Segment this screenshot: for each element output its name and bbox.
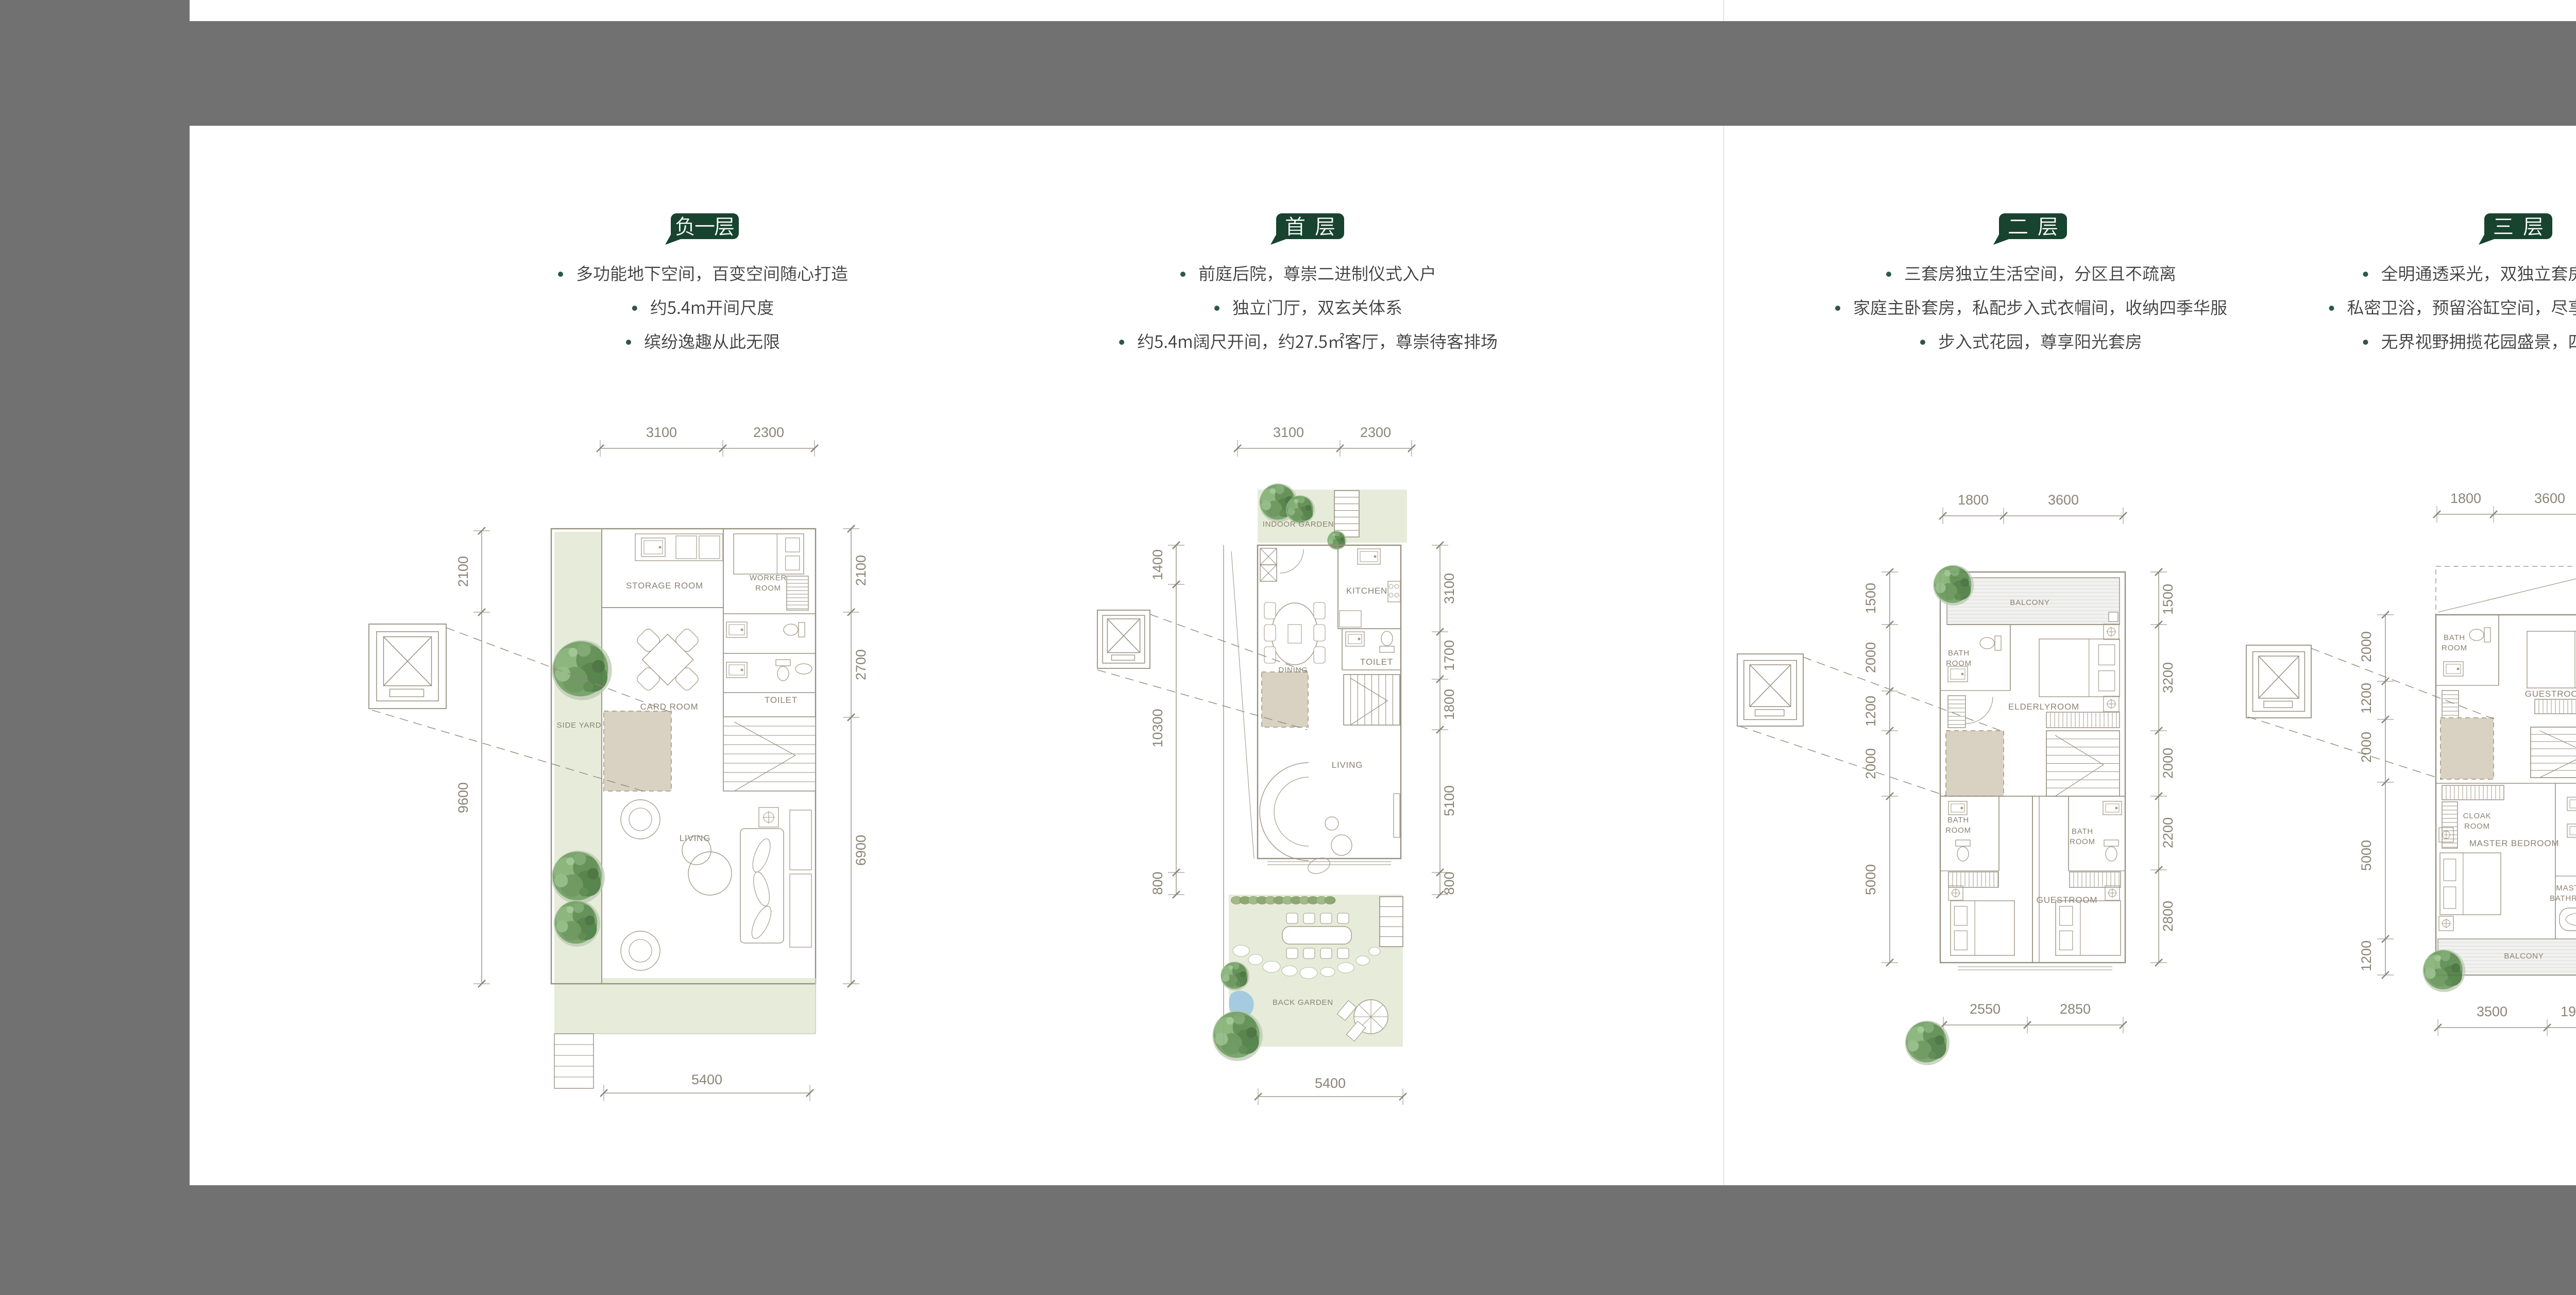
svg-text:BATHROOM: BATHROOM [2550,894,2576,903]
svg-text:800: 800 [1442,871,1457,895]
svg-text:2200: 2200 [2160,817,2176,848]
svg-text:1200: 1200 [2359,940,2374,971]
svg-text:2300: 2300 [753,425,784,440]
svg-text:9600: 9600 [455,782,471,813]
svg-text:ROOM: ROOM [2464,822,2490,831]
svg-text:BATH: BATH [1948,649,1970,658]
svg-text:5100: 5100 [1442,785,1457,816]
svg-text:3100: 3100 [646,425,677,440]
svg-text:5400: 5400 [1315,1075,1346,1091]
svg-text:1200: 1200 [1863,696,1878,727]
svg-text:WORKER: WORKER [750,574,787,582]
svg-text:2100: 2100 [455,556,471,587]
svg-text:2000: 2000 [1863,642,1878,673]
svg-text:2000: 2000 [2359,631,2374,662]
svg-text:1700: 1700 [1442,640,1457,671]
svg-text:MASTER: MASTER [2556,884,2576,893]
svg-text:2850: 2850 [2060,1001,2091,1017]
svg-text:ROOM: ROOM [1945,826,1971,835]
svg-text:1200: 1200 [2359,683,2374,714]
svg-text:ELDERLYROOM: ELDERLYROOM [2008,702,2079,712]
svg-text:3100: 3100 [1442,573,1457,604]
svg-text:6900: 6900 [853,835,869,866]
svg-text:10300: 10300 [1150,709,1165,747]
svg-text:MASTER BEDROOM: MASTER BEDROOM [2469,838,2560,848]
svg-text:2000: 2000 [2160,748,2176,779]
svg-text:CARD ROOM: CARD ROOM [640,702,699,712]
svg-text:BATH: BATH [2444,633,2465,642]
svg-text:3600: 3600 [2534,491,2565,506]
svg-text:800: 800 [1150,871,1165,895]
svg-text:2800: 2800 [2160,901,2176,932]
svg-text:SIDE YARD: SIDE YARD [557,721,602,730]
svg-text:3100: 3100 [1273,425,1304,440]
svg-text:1800: 1800 [1442,689,1457,720]
svg-text:5400: 5400 [691,1072,722,1087]
svg-text:2100: 2100 [853,555,869,586]
svg-text:1500: 1500 [2160,584,2176,615]
svg-text:GUESTROOM: GUESTROOM [2525,689,2576,699]
svg-text:5000: 5000 [2359,840,2374,871]
svg-text:2700: 2700 [853,649,869,680]
svg-text:BATH: BATH [1947,816,1969,825]
svg-text:2550: 2550 [1970,1001,2001,1017]
svg-text:3200: 3200 [2160,662,2176,693]
svg-text:2000: 2000 [1863,748,1878,779]
svg-text:BACK GARDEN: BACK GARDEN [1273,998,1333,1007]
svg-text:1400: 1400 [1150,549,1165,580]
svg-text:BATH: BATH [2072,827,2093,836]
svg-text:INDOOR GARDEN: INDOOR GARDEN [1263,520,1334,529]
svg-text:KITCHEN: KITCHEN [1346,586,1387,596]
svg-text:1800: 1800 [1958,492,1989,508]
svg-text:TOILET: TOILET [1360,657,1393,667]
svg-text:1900: 1900 [2561,1004,2576,1019]
svg-text:BALCONY: BALCONY [2010,598,2049,607]
svg-text:2300: 2300 [1360,425,1391,440]
svg-text:3500: 3500 [2477,1004,2507,1019]
svg-text:1800: 1800 [2450,491,2481,506]
svg-text:ROOM: ROOM [2442,644,2467,652]
svg-text:5000: 5000 [1863,864,1878,895]
svg-text:ROOM: ROOM [1946,659,1972,668]
svg-text:LIVING: LIVING [680,833,711,843]
svg-text:TOILET: TOILET [765,695,798,705]
svg-text:ROOM: ROOM [2070,837,2095,846]
svg-text:2000: 2000 [2359,732,2374,763]
svg-text:BALCONY: BALCONY [2504,952,2544,961]
svg-text:STORAGE ROOM: STORAGE ROOM [626,581,703,591]
svg-text:ROOM: ROOM [755,584,781,593]
svg-text:GUESTROOM: GUESTROOM [2037,895,2098,905]
svg-text:1500: 1500 [1863,583,1878,614]
svg-text:CLOAK: CLOAK [2463,812,2492,820]
svg-text:3600: 3600 [2048,492,2079,508]
svg-text:LIVING: LIVING [1332,760,1363,770]
